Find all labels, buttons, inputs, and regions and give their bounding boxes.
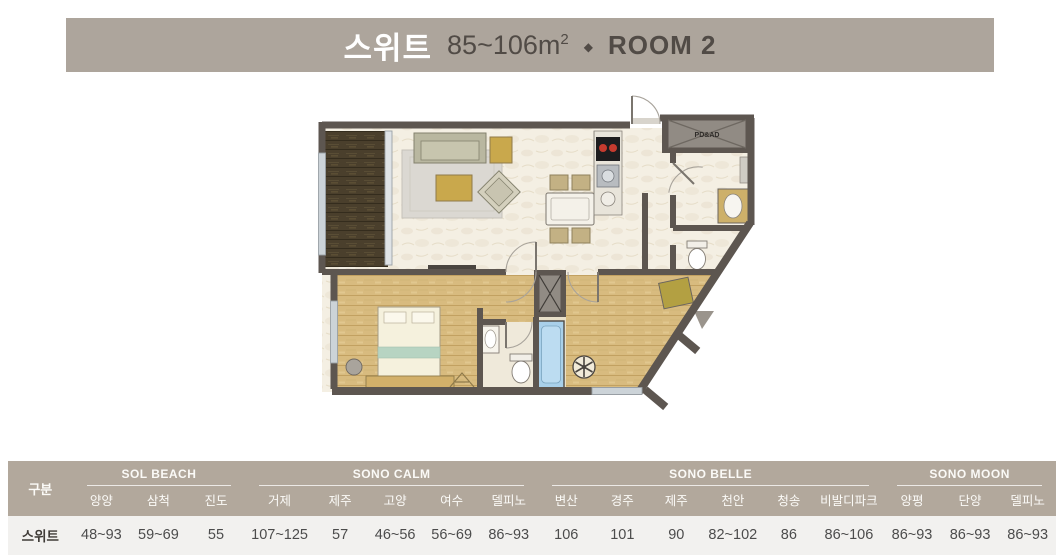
size-value: 86~106 bbox=[815, 516, 884, 555]
corner-shelf bbox=[694, 311, 714, 329]
stool bbox=[346, 359, 362, 375]
group-header: SONO CALM bbox=[245, 461, 538, 486]
branch-header: 변산 bbox=[538, 486, 595, 516]
size-value: 107~125 bbox=[245, 516, 314, 555]
size-value: 86~93 bbox=[999, 516, 1056, 555]
branch-header: 비발디파크 bbox=[815, 486, 884, 516]
toilet bbox=[512, 361, 530, 383]
branch-header: 진도 bbox=[187, 486, 246, 516]
size-value: 56~69 bbox=[424, 516, 480, 555]
size-value: 101 bbox=[595, 516, 651, 555]
group-header-label: SONO CALM bbox=[259, 467, 524, 486]
col-header-gubun: 구분 bbox=[8, 461, 73, 516]
branch-header: 단양 bbox=[941, 486, 1000, 516]
room-count-label: ROOM 2 bbox=[608, 30, 717, 61]
side-table bbox=[490, 137, 512, 163]
size-value: 82~102 bbox=[703, 516, 764, 555]
diamond-separator: ◆ bbox=[584, 37, 593, 54]
size-value: 57 bbox=[314, 516, 366, 555]
pd-ad-shaft: PD&AD bbox=[662, 115, 752, 153]
branch-header: 고양 bbox=[366, 486, 424, 516]
size-value: 106 bbox=[538, 516, 595, 555]
group-header: SOL BEACH bbox=[73, 461, 246, 486]
group-header-label: SONO MOON bbox=[897, 467, 1042, 486]
branch-header: 경주 bbox=[595, 486, 651, 516]
size-value: 59~69 bbox=[130, 516, 187, 555]
size-value: 86 bbox=[763, 516, 814, 555]
group-header: SONO BELLE bbox=[538, 461, 883, 486]
coffee-table bbox=[436, 175, 472, 201]
branch-header: 여수 bbox=[424, 486, 480, 516]
size-value: 90 bbox=[650, 516, 702, 555]
bed-bench bbox=[366, 376, 454, 388]
size-value: 55 bbox=[187, 516, 246, 555]
size-value: 86~93 bbox=[479, 516, 538, 555]
branch-header: 델피노 bbox=[479, 486, 538, 516]
size-value: 86~93 bbox=[883, 516, 941, 555]
group-header-label: SOL BEACH bbox=[87, 467, 232, 486]
size-value: 48~93 bbox=[73, 516, 131, 555]
balcony bbox=[322, 131, 388, 267]
table-row: 스위트48~9359~6955107~1255746~5656~6986~931… bbox=[8, 516, 1056, 555]
group-header: SONO MOON bbox=[883, 461, 1056, 486]
kitchen bbox=[594, 131, 622, 215]
room-type-banner: 스위트 85~106m2 ◆ ROOM 2 bbox=[66, 18, 994, 72]
branch-header: 양양 bbox=[73, 486, 131, 516]
group-header-label: SONO BELLE bbox=[552, 467, 869, 486]
room-size: 85~106m2 bbox=[447, 30, 569, 61]
room-type-title: 스위트 bbox=[343, 23, 432, 68]
desk bbox=[659, 277, 694, 309]
branch-header: 델피노 bbox=[999, 486, 1056, 516]
size-value: 46~56 bbox=[366, 516, 424, 555]
branch-header: 제주 bbox=[314, 486, 366, 516]
size-table: 구분SOL BEACHSONO CALMSONO BELLESONO MOON양… bbox=[8, 461, 1056, 555]
branch-header: 청송 bbox=[763, 486, 814, 516]
toilet-tank bbox=[510, 354, 532, 361]
small-shaft bbox=[534, 270, 566, 317]
entry-sill bbox=[632, 118, 660, 124]
branch-header: 거제 bbox=[245, 486, 314, 516]
size-value: 86~93 bbox=[941, 516, 1000, 555]
floorplan-svg: PD&AD bbox=[310, 95, 760, 415]
toilet-2 bbox=[689, 249, 706, 270]
row-label: 스위트 bbox=[8, 516, 73, 555]
branch-header: 제주 bbox=[650, 486, 702, 516]
branch-header: 양평 bbox=[883, 486, 941, 516]
branch-header: 삼척 bbox=[130, 486, 187, 516]
round-sink bbox=[601, 192, 615, 206]
shaft-label: PD&AD bbox=[695, 132, 720, 139]
branch-header: 천안 bbox=[703, 486, 764, 516]
